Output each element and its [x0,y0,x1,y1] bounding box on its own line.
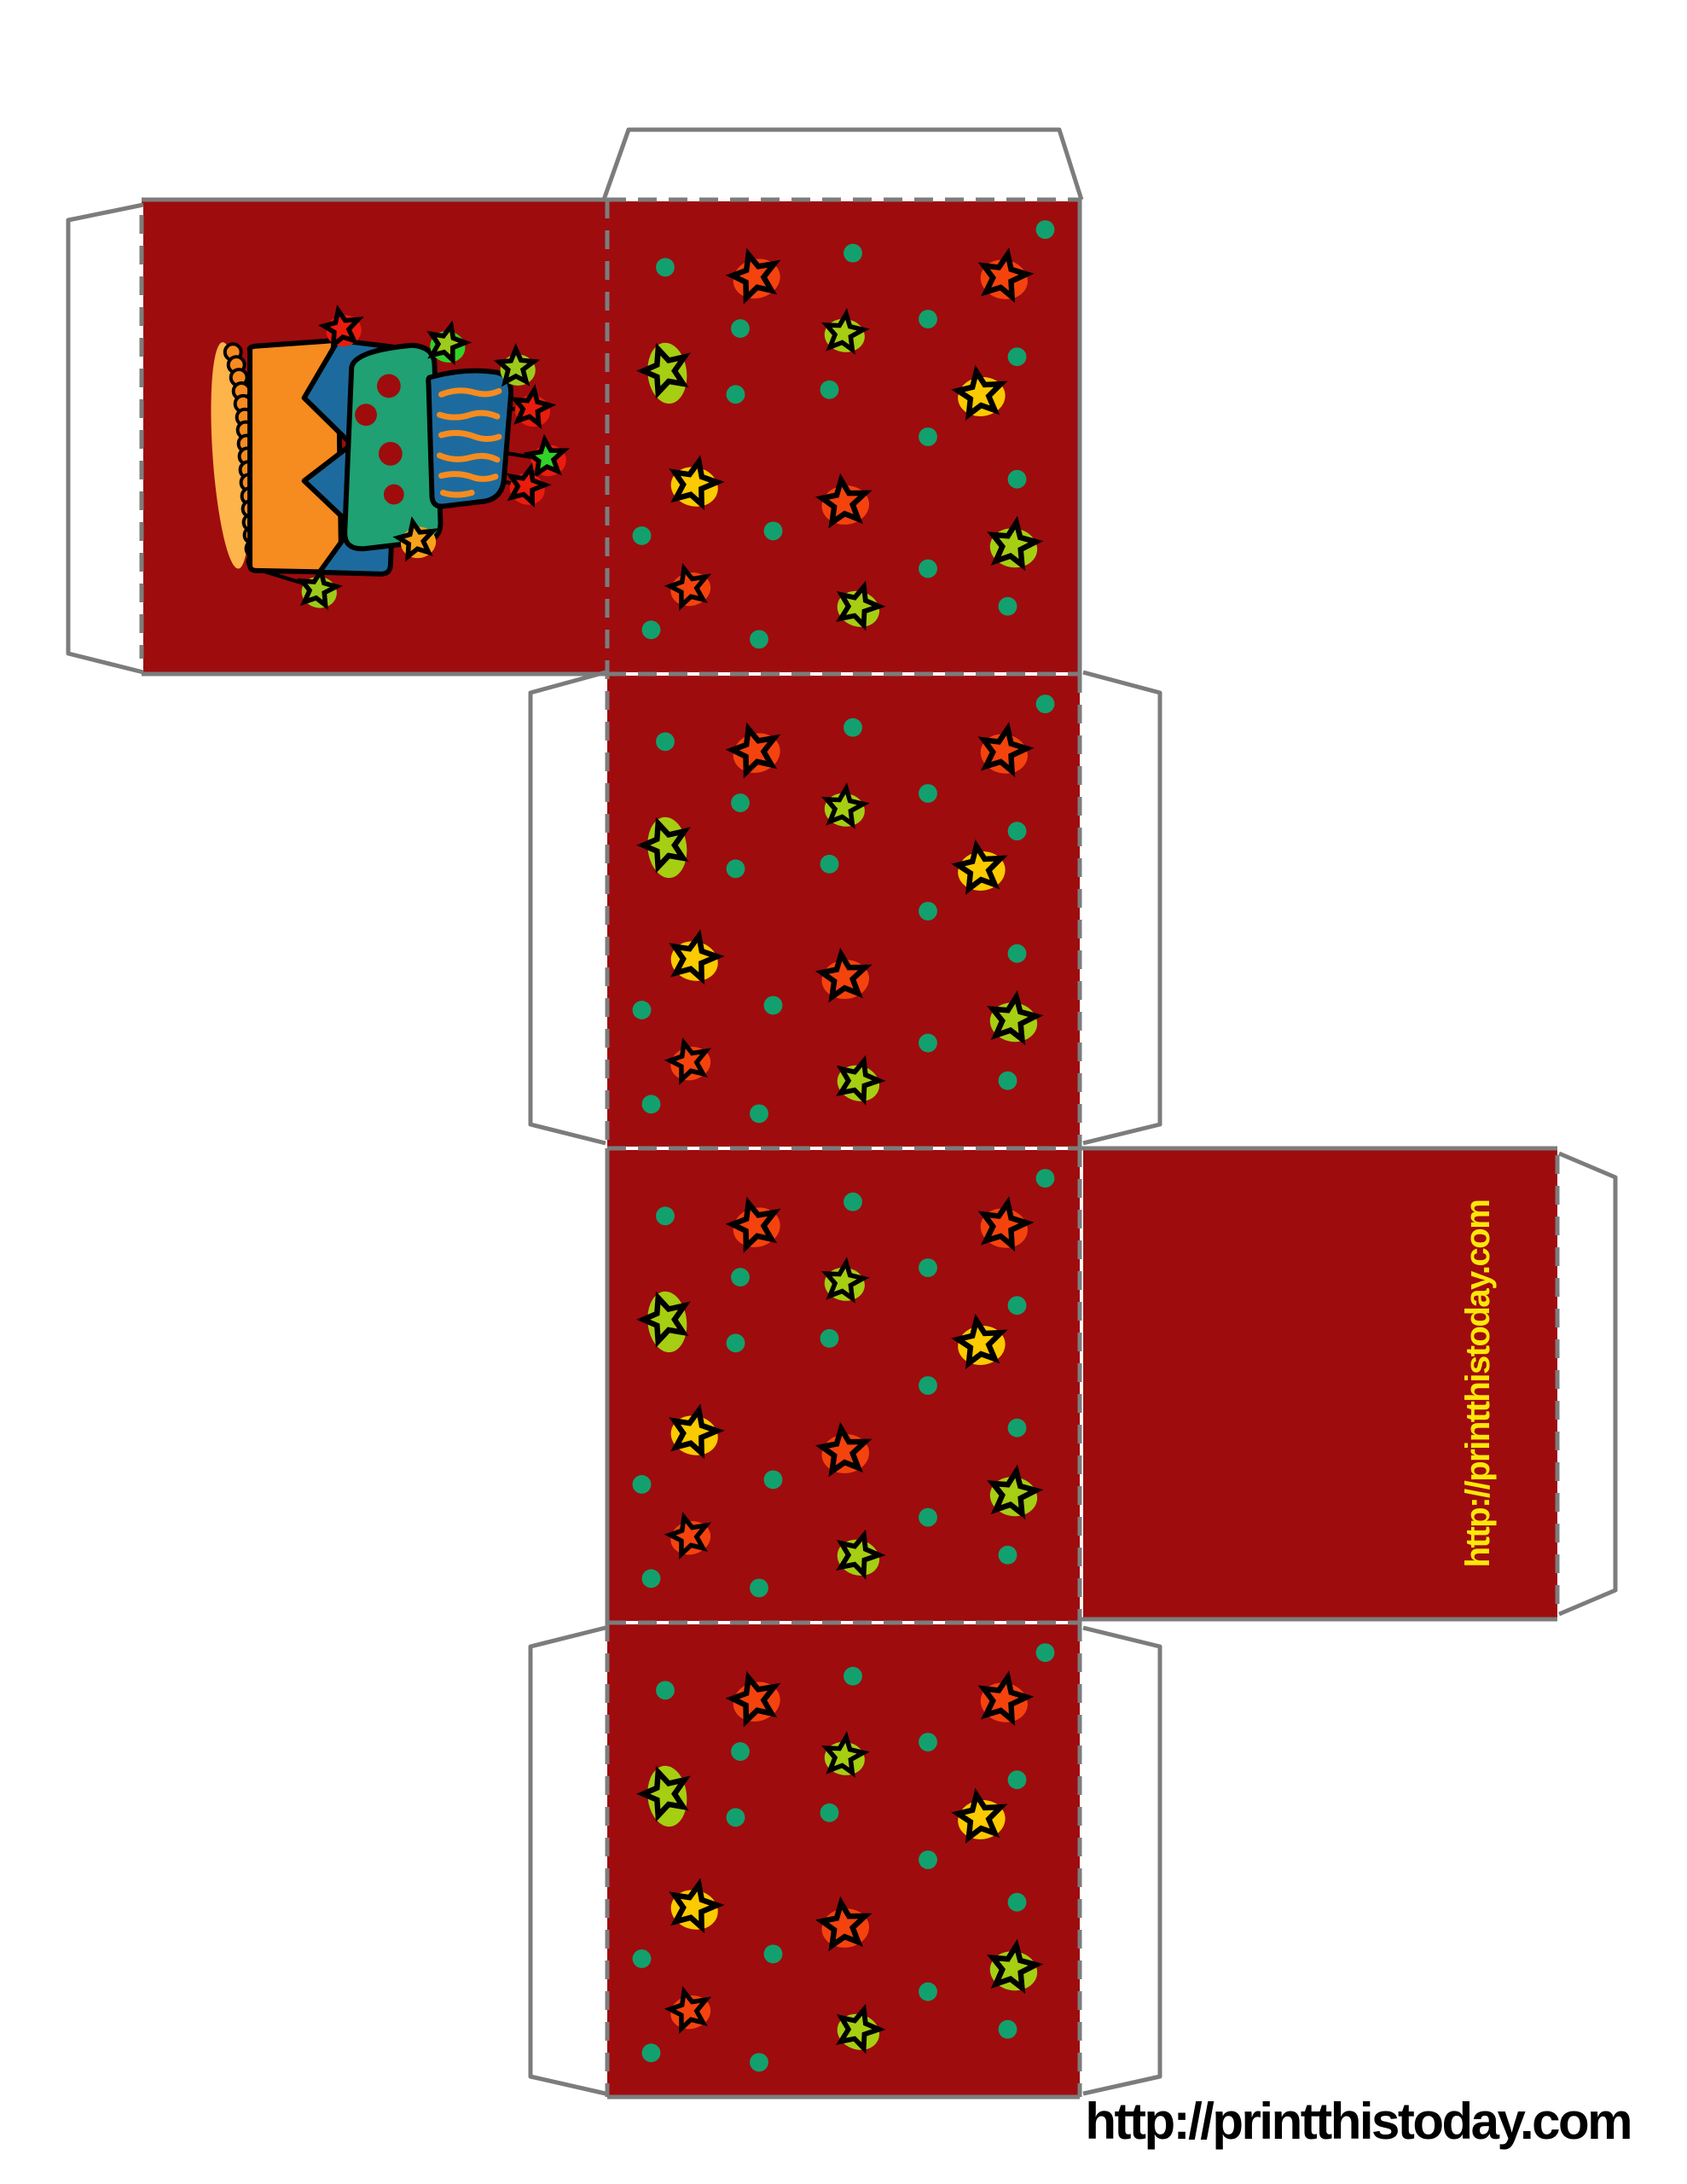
glue-flap-bottom-right [1559,1153,1615,1614]
birthday-cake-illustration [142,201,607,672]
cake-wire-star [528,438,567,477]
glue-flap-side2-right [1083,672,1160,1143]
panel-box-lid [142,201,607,672]
star-dot-pattern [607,1150,1080,1621]
side-panel-url-label: http://printthistoday.com [1454,1148,1502,1619]
box-template-page: http://printthistoday.com http://printth… [0,0,1687,2184]
glue-flap-top [604,130,1081,200]
panel-box-side-4 [607,1624,1080,2095]
cake-wire-star [499,349,536,386]
star-dot-pattern [607,676,1080,1147]
glue-flap-side2-left [530,672,606,1143]
panel-box-side-3 [607,1150,1080,1621]
footer-url-label: http://printthistoday.com [1085,2092,1631,2151]
cake-wire-star [512,387,554,430]
panel-box-side-2 [607,676,1080,1147]
panel-box-side-1 [607,201,1080,672]
glue-flap-lid-left [68,205,143,672]
glue-flap-side4-right [1083,1628,1160,2094]
star-dot-pattern [607,1624,1080,2095]
glue-flap-side4-left [530,1628,606,2094]
star-dot-pattern [607,201,1080,672]
